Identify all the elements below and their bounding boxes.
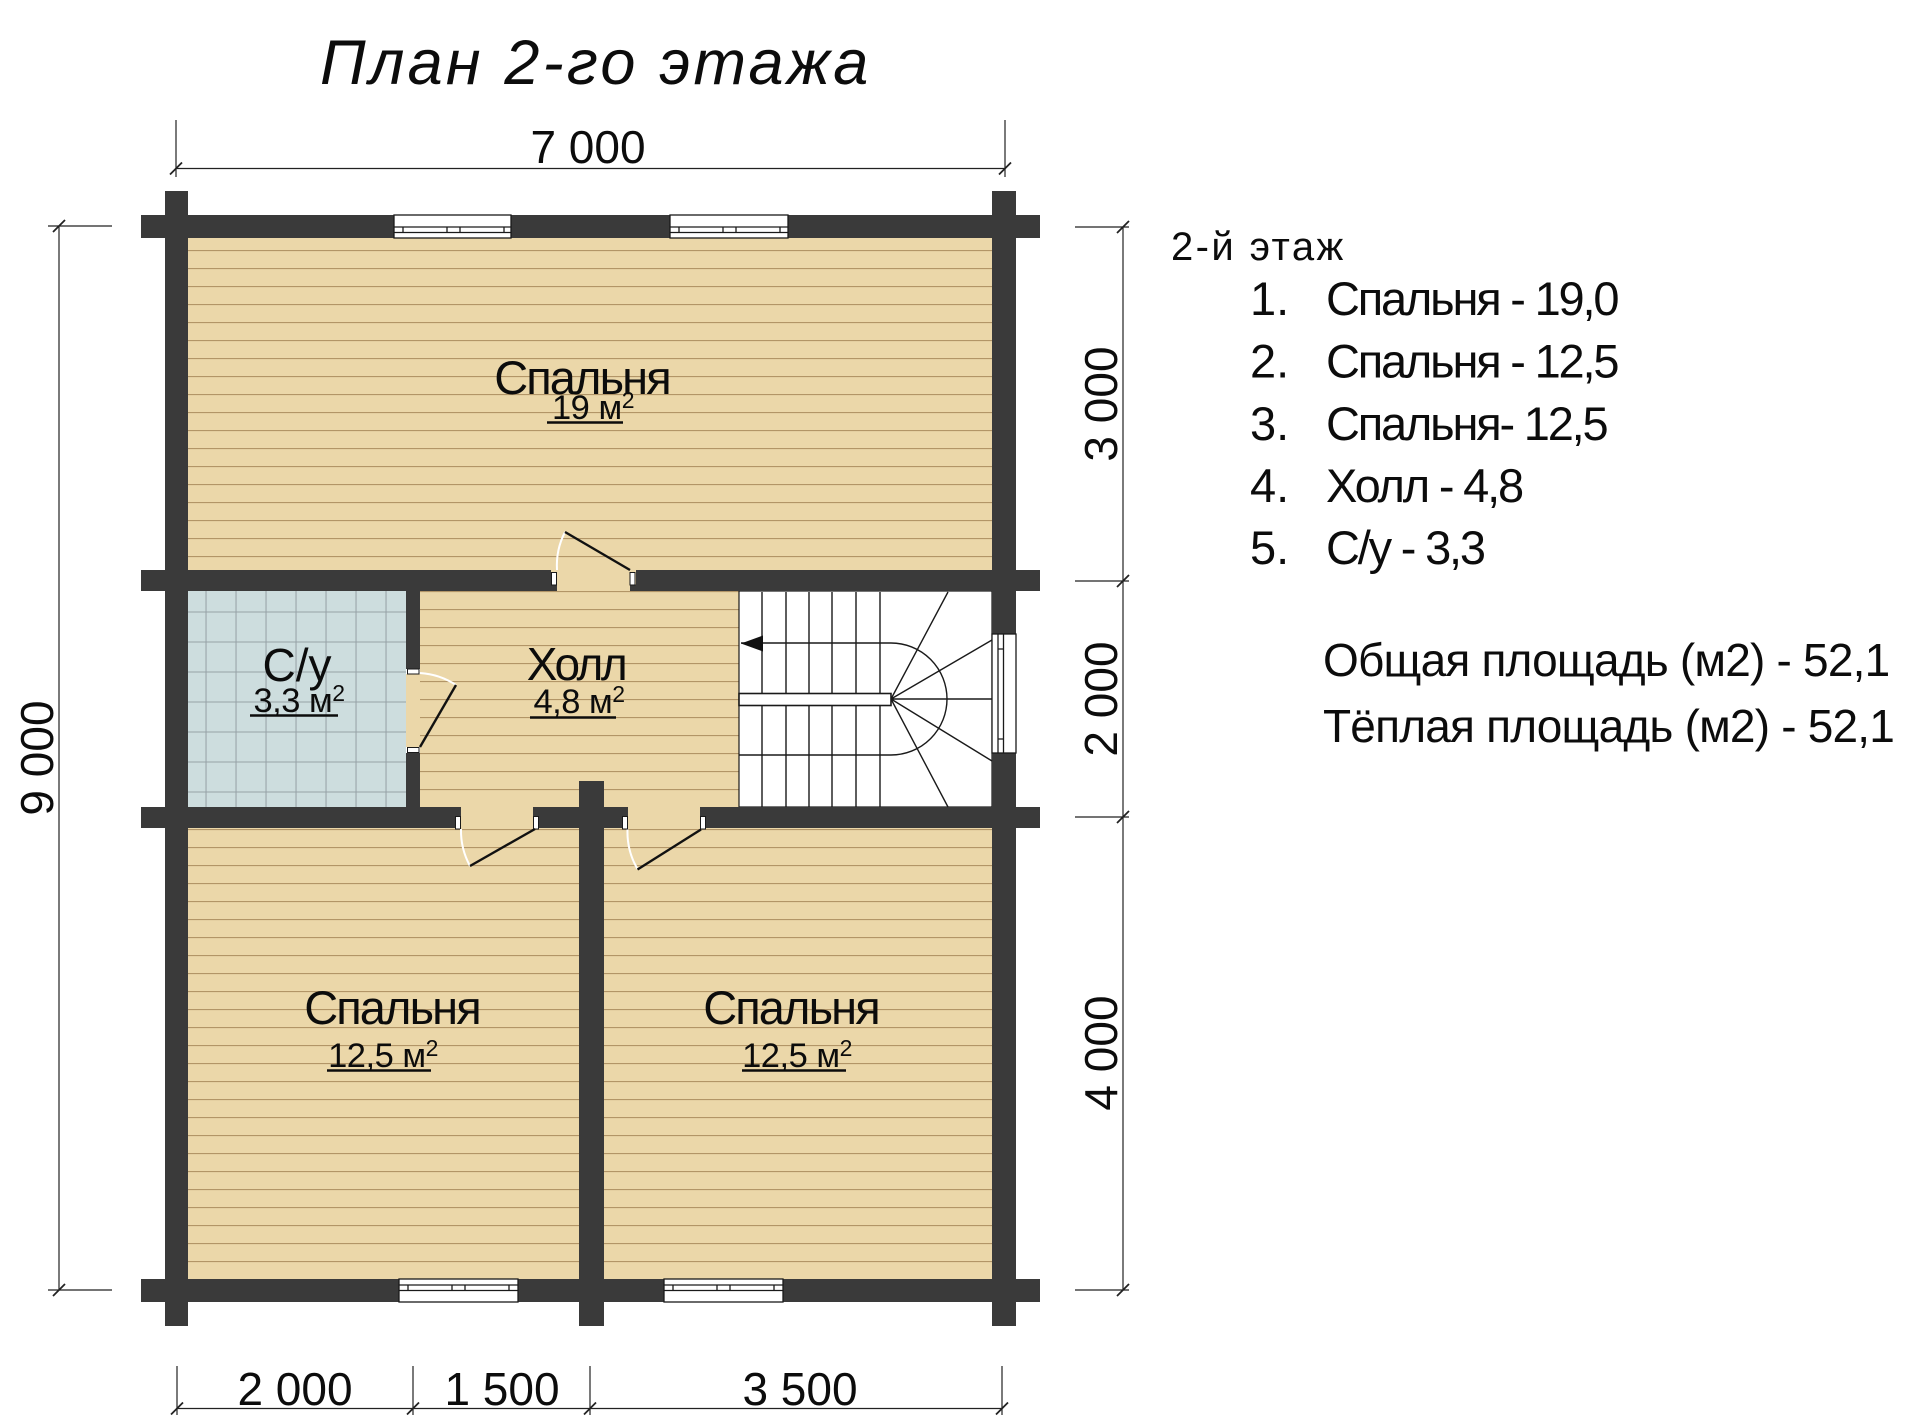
svg-text:4,8 м2: 4,8 м2: [533, 681, 624, 721]
svg-text:4.: 4.: [1250, 459, 1289, 512]
svg-text:2-й этаж: 2-й этаж: [1171, 225, 1346, 269]
svg-text:Спальня- 12,5: Спальня- 12,5: [1326, 397, 1607, 450]
svg-text:2 000: 2 000: [1075, 641, 1127, 756]
svg-text:1 500: 1 500: [444, 1363, 559, 1415]
svg-text:2.: 2.: [1250, 335, 1289, 388]
svg-text:4 000: 4 000: [1075, 995, 1127, 1110]
svg-text:Тёплая площадь (м2) - 52,1: Тёплая площадь (м2) - 52,1: [1323, 700, 1894, 752]
svg-text:План 2-го этажа: План 2-го этажа: [320, 28, 871, 98]
svg-text:Холл - 4,8: Холл - 4,8: [1326, 459, 1523, 512]
svg-text:Спальня - 12,5: Спальня - 12,5: [1326, 335, 1618, 388]
svg-text:2 000: 2 000: [237, 1363, 352, 1415]
svg-text:Общая площадь (м2) - 52,1: Общая площадь (м2) - 52,1: [1323, 634, 1889, 686]
svg-text:3,3 м2: 3,3 м2: [253, 680, 344, 720]
svg-text:Спальня: Спальня: [703, 981, 879, 1034]
svg-text:3.: 3.: [1250, 397, 1289, 450]
svg-text:9 000: 9 000: [11, 700, 63, 815]
svg-text:12,5 м2: 12,5 м2: [328, 1035, 438, 1075]
svg-text:Спальня - 19,0: Спальня - 19,0: [1326, 272, 1618, 325]
svg-text:Спальня: Спальня: [304, 981, 480, 1034]
svg-text:3 000: 3 000: [1075, 346, 1127, 461]
svg-text:19 м2: 19 м2: [552, 387, 634, 427]
svg-text:7 000: 7 000: [530, 121, 645, 173]
svg-text:С/у - 3,3: С/у - 3,3: [1326, 521, 1485, 574]
svg-text:3 500: 3 500: [742, 1363, 857, 1415]
svg-text:5.: 5.: [1250, 521, 1289, 574]
svg-text:12,5 м2: 12,5 м2: [742, 1035, 852, 1075]
svg-text:1.: 1.: [1250, 272, 1289, 325]
